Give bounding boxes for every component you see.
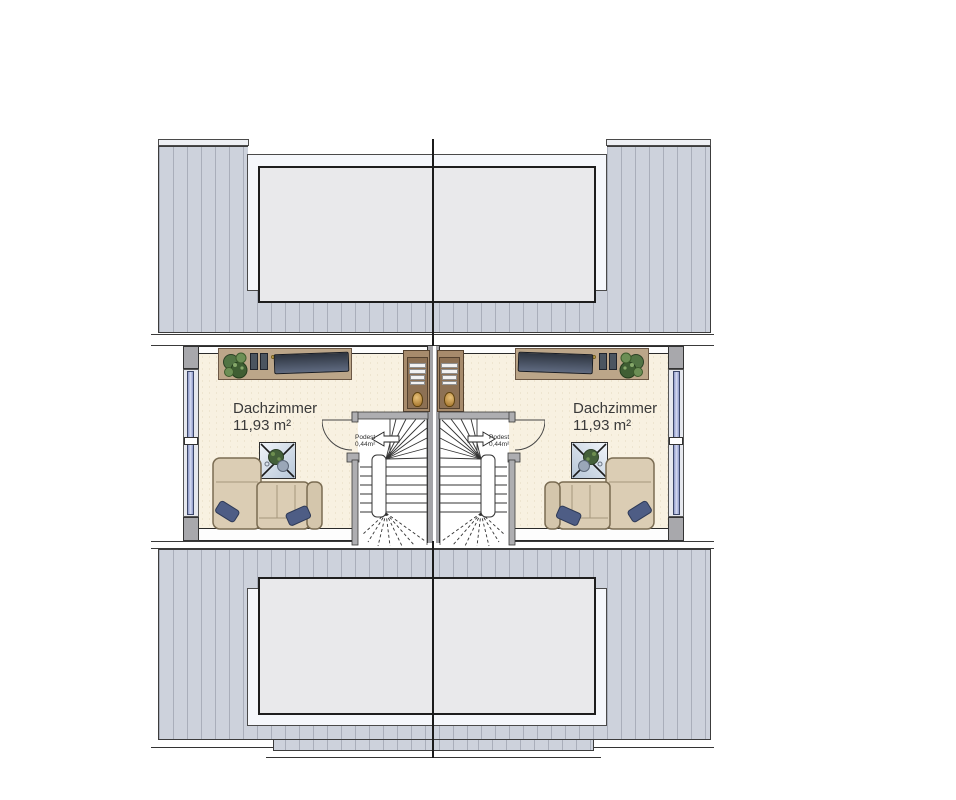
landing-name: Podest — [355, 434, 375, 441]
towel-stack — [441, 369, 458, 374]
room-area: 11,93 m² — [573, 417, 657, 434]
landing-area: 0,44m² — [355, 441, 375, 448]
room-area: 11,93 m² — [233, 417, 317, 434]
room-name: Dachzimmer — [233, 400, 317, 417]
sofa — [542, 456, 656, 532]
landing-label-right: Podest 0,44m² — [489, 434, 509, 448]
landing-name: Podest — [489, 434, 509, 441]
plant-icon — [615, 350, 647, 382]
media-box — [599, 353, 607, 370]
room-name: Dachzimmer — [573, 400, 657, 417]
towel-stack — [442, 381, 457, 385]
towel-stack — [442, 375, 457, 380]
handrail — [481, 455, 495, 517]
room-label-left: Dachzimmer 11,93 m² — [233, 400, 317, 434]
towel-stack — [441, 363, 458, 368]
media-box — [609, 353, 617, 370]
tv-icon — [518, 352, 594, 375]
shelf-unit — [437, 350, 464, 412]
door-swing — [515, 420, 545, 450]
room-label-right: Dachzimmer 11,93 m² — [573, 400, 657, 434]
staircase — [433, 405, 545, 547]
landing-area: 0,44m² — [489, 441, 509, 448]
floor-plan: Dachzimmer 11,93 m² Dachzimmer 11,93 m² … — [0, 0, 956, 800]
landing-label-left: Podest 0,44m² — [355, 434, 375, 448]
tv-sideboard — [515, 348, 649, 380]
